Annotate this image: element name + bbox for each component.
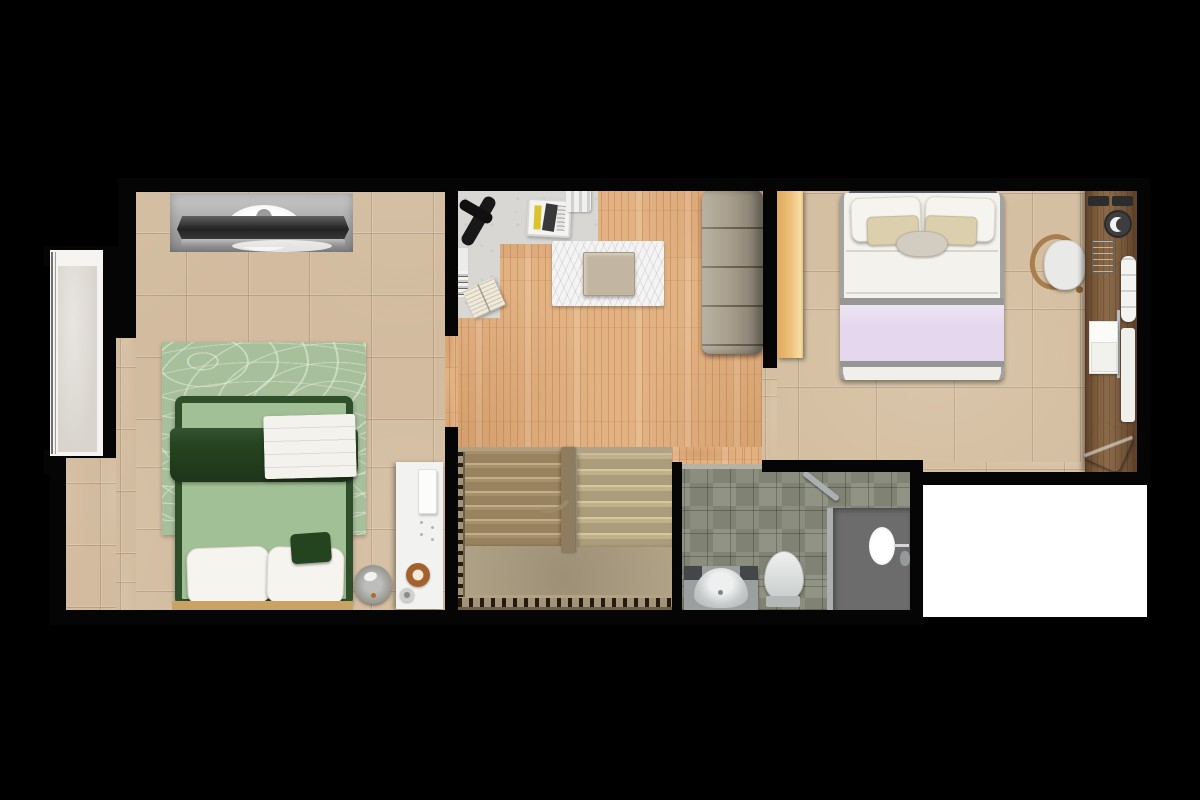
wall-mid-left-lower xyxy=(445,427,458,612)
bed-right-foot xyxy=(843,367,1001,380)
wall-left-lower xyxy=(50,452,66,622)
desk-radio xyxy=(1092,240,1114,273)
wardrobe xyxy=(777,190,803,358)
desk-chair xyxy=(1030,232,1088,298)
wall-bedroom-right-bottom xyxy=(922,472,1150,485)
cushion-center xyxy=(896,231,948,257)
wall-window-jamb-upper xyxy=(100,262,136,338)
doorway-bedroom-right xyxy=(762,367,777,462)
wall-stairs-bathroom xyxy=(672,462,682,612)
terrace-void xyxy=(922,485,1147,617)
floor-plan xyxy=(0,0,1200,800)
window-glass xyxy=(58,266,97,452)
clock-shadow xyxy=(1116,218,1128,231)
room-bedroom-right xyxy=(0,0,1200,800)
wall-right xyxy=(1137,178,1150,485)
desk-clock xyxy=(1104,210,1132,238)
wall-mid-left-upper xyxy=(445,178,458,336)
remote-2 xyxy=(1112,196,1133,206)
chair-seat xyxy=(1044,240,1086,290)
wall-top xyxy=(118,178,1150,191)
wall-mid-right xyxy=(763,178,777,368)
desk-cloth xyxy=(1121,328,1135,422)
blanket-band-top xyxy=(840,298,1004,305)
window-frame-line-1 xyxy=(51,252,53,454)
blanket-lavender xyxy=(840,305,1004,361)
desk-paper-2 xyxy=(1091,342,1117,372)
remote-1 xyxy=(1088,196,1109,206)
wall-bathroom-top xyxy=(762,460,912,472)
wall-bottom xyxy=(50,610,922,625)
chair-foot xyxy=(1076,286,1083,293)
towel-roll xyxy=(1121,256,1136,322)
duvet-fold-2 xyxy=(846,292,998,294)
window-frame-line-2 xyxy=(55,252,56,454)
